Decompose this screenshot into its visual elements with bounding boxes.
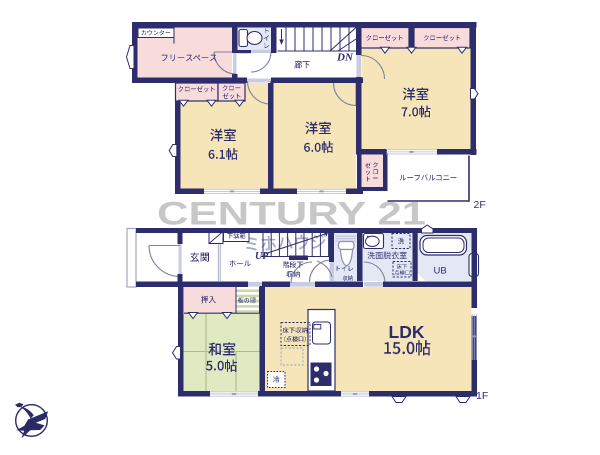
- svg-text:CENTURY 21: CENTURY 21: [157, 196, 426, 232]
- svg-text:1F: 1F: [476, 390, 488, 402]
- svg-text:LDK: LDK: [389, 322, 425, 342]
- svg-text:2F: 2F: [474, 199, 486, 211]
- svg-text:UB: UB: [434, 266, 447, 277]
- svg-text:DN: DN: [336, 52, 354, 64]
- svg-text:UP: UP: [255, 251, 269, 262]
